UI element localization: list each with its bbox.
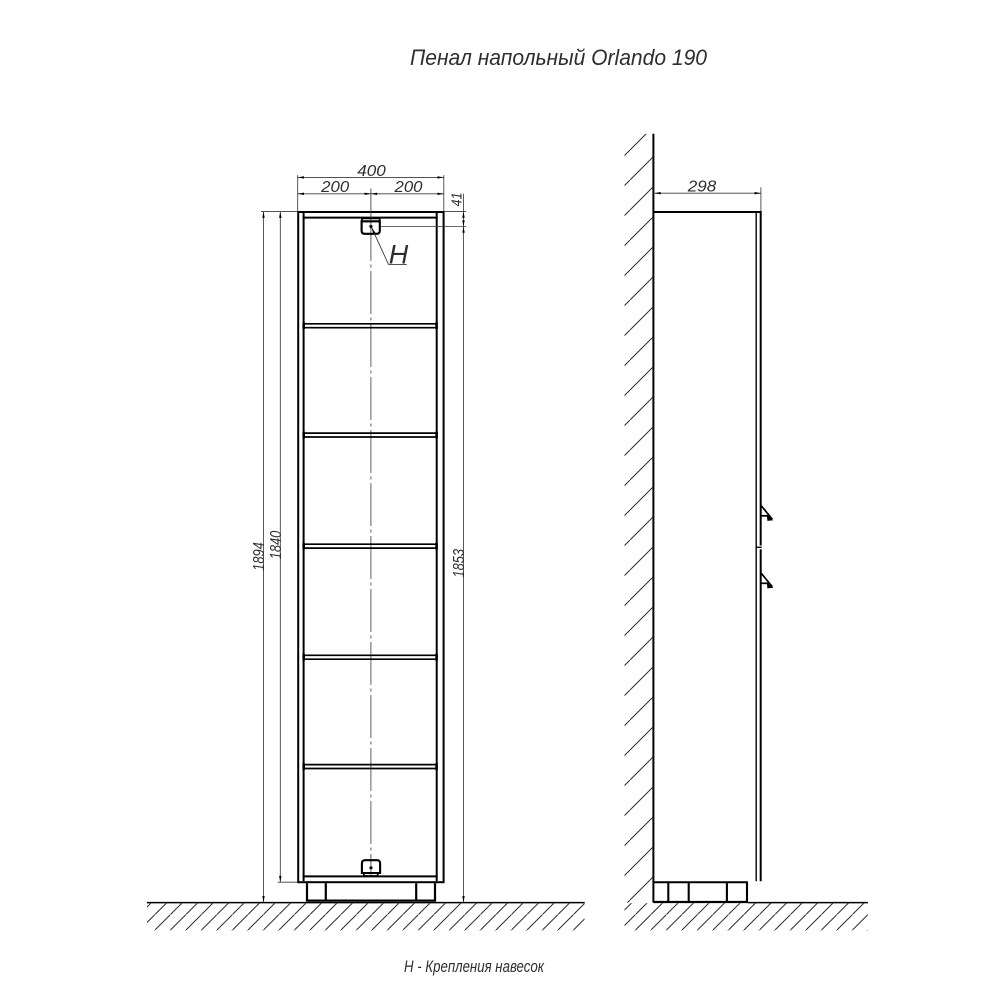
svg-text:H: H	[389, 239, 409, 269]
svg-text:41: 41	[448, 193, 465, 207]
svg-text:400: 400	[357, 163, 386, 180]
svg-text:Н - Крепления навесок: Н - Крепления навесок	[404, 957, 545, 976]
svg-text:200: 200	[393, 179, 422, 196]
svg-text:200: 200	[320, 179, 349, 196]
svg-text:1894: 1894	[251, 542, 268, 571]
svg-text:1840: 1840	[268, 531, 285, 560]
svg-text:1853: 1853	[451, 549, 468, 578]
svg-text:298: 298	[687, 178, 717, 195]
svg-text:Пенал напольный Orlando 190: Пенал напольный Orlando 190	[410, 45, 708, 70]
